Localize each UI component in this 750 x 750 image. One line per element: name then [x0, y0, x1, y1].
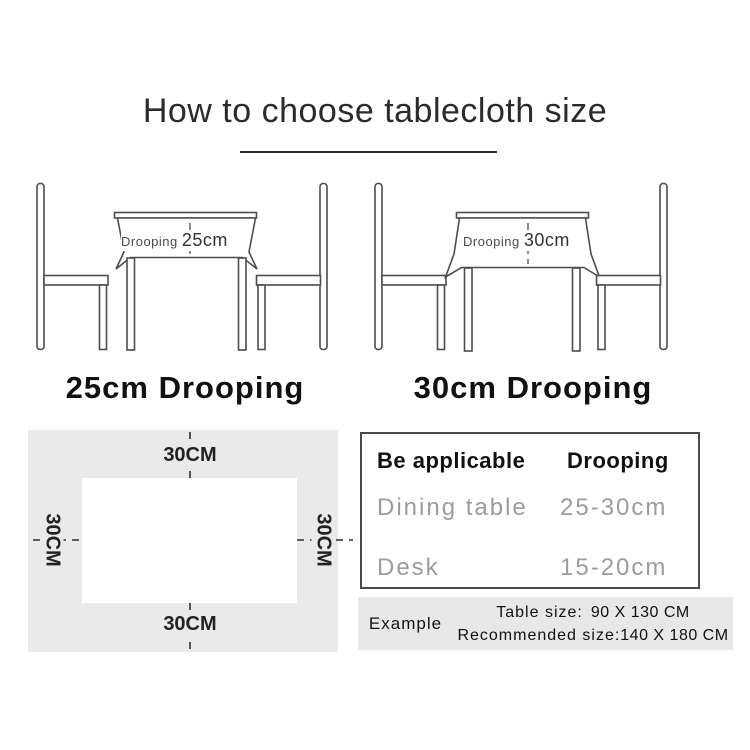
right-scene-left-chair: [375, 184, 446, 350]
spec-header-be-applicable: Be applicable: [377, 448, 525, 474]
left-cloth-drooping-label: Drooping 25cm: [121, 230, 221, 251]
left-scene-left-chair: [37, 184, 108, 350]
right-scene-right-chair: [597, 184, 668, 350]
left-cloth-drooping-value: 25cm: [182, 230, 228, 250]
spec-row-desk-name: Desk: [377, 554, 440, 582]
tablecloth-size-guide: How to choose tablecloth size: [0, 0, 750, 750]
left-cloth-drooping-word: Drooping: [121, 234, 178, 249]
recommended-size-value: 140 X 180 CM: [620, 627, 728, 644]
tablecloth-scenes-illustration: [0, 180, 750, 355]
right-cloth-drooping-label: Drooping 30cm: [463, 230, 563, 251]
spec-row-dining-table-name: Dining table: [377, 494, 528, 522]
table-size-value: 90 X 130 CM: [591, 604, 690, 621]
example-strip: Example Table size:90 X 130 CM Recommend…: [358, 597, 733, 650]
spec-row-desk-value: 15-20cm: [560, 554, 667, 582]
bottom-margin-label: 30CM: [145, 613, 235, 636]
right-cloth-drooping-value: 30cm: [524, 230, 570, 250]
example-label: Example: [358, 614, 453, 634]
drooping-spec-table: Be applicable Drooping Dining table 25-3…: [360, 432, 700, 589]
example-lines: Table size:90 X 130 CM Recommended size:…: [453, 601, 733, 647]
title-underline: [240, 151, 497, 153]
right-margin-label: 30CM: [312, 508, 335, 571]
caption-30cm-drooping: 30cm Drooping: [408, 370, 658, 406]
page-title: How to choose tablecloth size: [0, 92, 750, 131]
top-margin-label: 30CM: [145, 444, 235, 467]
table-size-label: Table size:: [496, 604, 583, 621]
left-scene-right-chair: [257, 184, 328, 350]
example-table-size-line: Table size:90 X 130 CM: [453, 601, 733, 624]
spec-row-dining-table-value: 25-30cm: [560, 494, 667, 522]
recommended-size-label: Recommended size:: [457, 627, 620, 644]
spec-header-drooping: Drooping: [567, 448, 669, 474]
left-margin-label: 30CM: [41, 508, 64, 571]
caption-25cm-drooping: 25cm Drooping: [60, 370, 310, 406]
example-recommended-line: Recommended size:140 X 180 CM: [453, 624, 733, 647]
right-cloth-drooping-word: Drooping: [463, 234, 520, 249]
